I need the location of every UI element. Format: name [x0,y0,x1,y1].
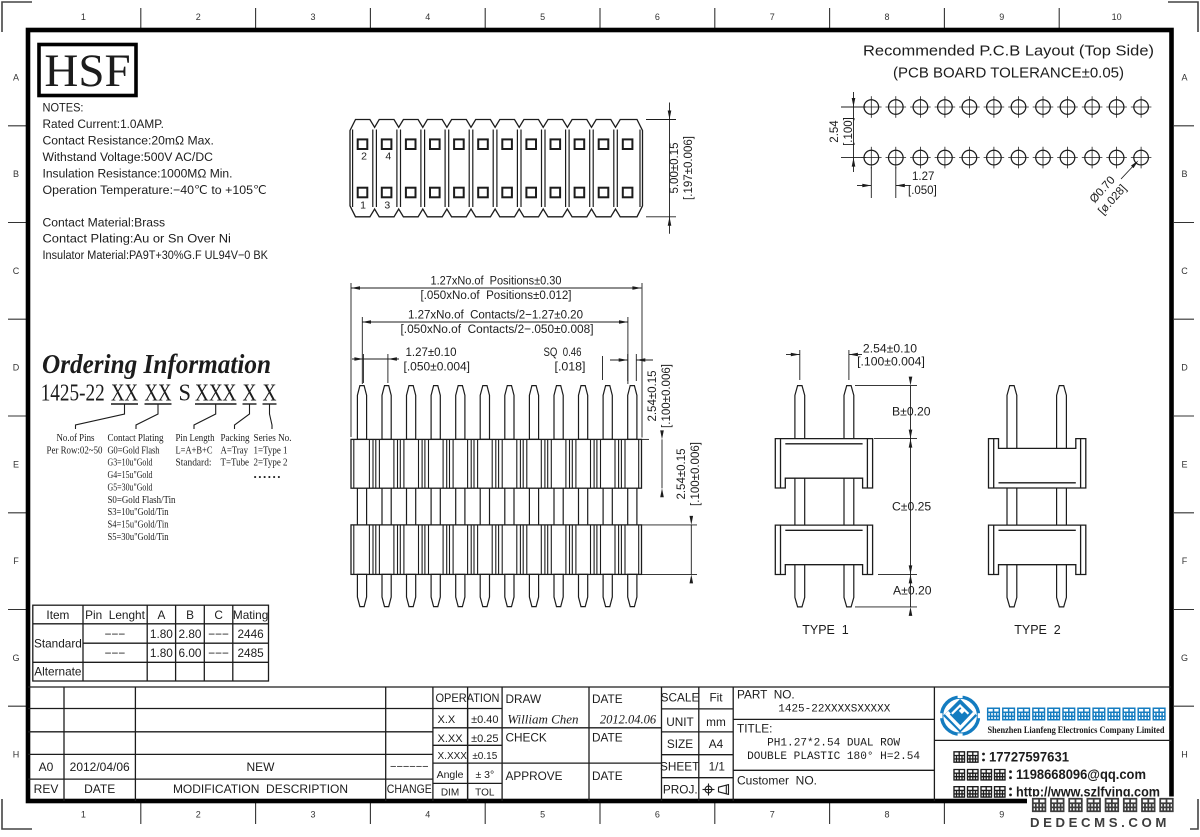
svg-text:TYPE 1: TYPE 1 [802,623,849,637]
svg-text:10: 10 [1112,12,1122,22]
svg-text:Rated Current:1.0AMP.: Rated Current:1.0AMP. [43,117,164,131]
svg-text:DATE: DATE [84,782,115,796]
svg-text:DATE: DATE [592,731,623,745]
svg-text:X.XXX: X.XXX [438,751,468,762]
svg-text:2.54±0.15: 2.54±0.15 [647,370,659,421]
svg-text:1: 1 [81,810,86,820]
svg-text:Item: Item [46,608,69,622]
svg-text:A4: A4 [709,737,724,751]
svg-text:CHANGE: CHANGE [387,782,432,796]
svg-text:No.of Pins: No.of Pins [57,433,95,444]
svg-text:Packing: Packing [221,433,251,444]
svg-text:[.100±0.004]: [.100±0.004] [857,355,925,369]
svg-text:X: X [243,380,257,407]
svg-text:[.100±0.006]: [.100±0.006] [661,364,673,428]
svg-text:[.050xNo.of Positions±0.012]: [.050xNo.of Positions±0.012] [421,288,572,302]
svg-text:[.050xNo.of Contacts/2−.050±0: [.050xNo.of Contacts/2−.050±0.008] [401,322,594,336]
svg-text:[.050]: [.050] [908,185,937,197]
svg-text:D: D [1181,363,1188,373]
svg-text:NOTES:: NOTES: [43,101,84,115]
svg-text:William Chen: William Chen [507,712,578,727]
svg-text:2485: 2485 [237,646,264,660]
svg-text:A: A [13,72,19,82]
svg-text:6: 6 [655,810,660,820]
svg-text:REV: REV [34,782,59,796]
svg-text:TOL: TOL [475,788,495,799]
svg-text:mm: mm [706,715,726,729]
svg-text:B: B [186,608,194,622]
svg-text:S0=Gold Flash/Tin: S0=Gold Flash/Tin [108,495,177,506]
svg-text:A=Tray: A=Tray [221,445,249,456]
svg-text:Operation Temperature:−40℃ to: Operation Temperature:−40℃ to +105℃ [43,183,267,197]
svg-text:8: 8 [884,810,889,820]
svg-text:S3=10u"Gold/Tin: S3=10u"Gold/Tin [108,507,170,518]
svg-text:X.X: X.X [438,714,456,726]
svg-text:1: 1 [81,12,86,22]
svg-text:Withstand Voltage:500V AC/DC: Withstand Voltage:500V AC/DC [43,150,214,164]
svg-text:Insulation Resistance:1000MΩ M: Insulation Resistance:1000MΩ Min. [43,167,233,181]
svg-text:±0.40: ±0.40 [471,714,498,726]
svg-text:2012/04/06: 2012/04/06 [70,760,130,774]
svg-text:17727597631: 17727597631 [989,750,1069,765]
svg-text:TYPE 2: TYPE 2 [1014,623,1061,637]
svg-text:T=Tube: T=Tube [221,458,250,469]
svg-text:Fit: Fit [709,691,723,705]
svg-text:1/1: 1/1 [709,760,725,774]
svg-text:Series No.: Series No. [254,433,292,444]
svg-text:A±0.20: A±0.20 [893,584,932,598]
svg-text:[.018]: [.018] [555,360,586,374]
svg-text:G4=15u"Gold: G4=15u"Gold [108,470,154,481]
svg-text:Per Row:02~50: Per Row:02~50 [47,446,103,457]
svg-text:6: 6 [655,12,660,22]
svg-text:APPROVE: APPROVE [506,769,563,783]
svg-text:Ordering Information: Ordering Information [42,349,271,379]
svg-text:H: H [13,750,20,760]
svg-text:D: D [13,363,20,373]
svg-text:......: ...... [254,466,283,481]
svg-text:MODIFICATION DESCRIPTION: MODIFICATION DESCRIPTION [173,782,348,796]
svg-text:SHEET: SHEET [660,760,699,774]
svg-text:1425-22XXXXSXXXXX: 1425-22XXXXSXXXXX [778,704,890,716]
svg-text:G5=30u"Gold: G5=30u"Gold [108,482,154,493]
svg-text:1=Type 1: 1=Type 1 [254,445,288,456]
svg-text:[.197±0.006]: [.197±0.006] [683,136,695,200]
svg-text:−−−−−−: −−−−−− [390,761,429,773]
svg-text:A0: A0 [39,760,54,774]
svg-text:TITLE:: TITLE: [737,722,772,736]
svg-text:1198668096@qq.com: 1198668096@qq.com [1016,767,1146,782]
svg-text:7: 7 [770,12,775,22]
svg-text:±0.25: ±0.25 [471,733,498,745]
svg-text:Standard:: Standard: [176,458,212,469]
svg-text:SQ 0.46: SQ 0.46 [544,345,582,359]
svg-text:Alternate: Alternate [34,665,82,679]
svg-text:1.80: 1.80 [150,646,173,660]
svg-text:XX: XX [145,380,172,407]
svg-text:1.27xNo.of Positions±0.30: 1.27xNo.of Positions±0.30 [431,274,562,288]
svg-text:±0.15: ±0.15 [472,751,497,762]
svg-text:Insulator Material:PA9T+30%G.F: Insulator Material:PA9T+30%G.F UL94V−0 B… [43,248,268,262]
svg-text:9: 9 [999,810,1004,820]
svg-text:X.XX: X.XX [438,733,464,745]
svg-text:S5=30u"Gold/Tin: S5=30u"Gold/Tin [108,532,170,543]
svg-text:−−−: −−− [105,627,126,641]
svg-text:CHECK: CHECK [506,731,547,745]
svg-text:[.100±0.006]: [.100±0.006] [690,442,702,506]
svg-text:1.27xNo.of Contacts/2−1.27±0.: 1.27xNo.of Contacts/2−1.27±0.20 [408,308,583,322]
svg-text:5.00±0.15: 5.00±0.15 [669,142,681,193]
svg-text:PART NO.: PART NO. [737,688,795,702]
svg-text:2012.04.06: 2012.04.06 [600,713,657,727]
svg-text:B: B [1181,169,1187,179]
svg-text:3: 3 [384,200,390,212]
svg-text:Mating: Mating [233,608,268,622]
svg-text:SCALE: SCALE [661,691,700,705]
svg-text:7: 7 [770,810,775,820]
svg-text:DATE: DATE [592,692,623,706]
svg-text:E: E [13,459,19,469]
svg-text:C±0.25: C±0.25 [892,500,931,514]
svg-text:9: 9 [999,12,1004,22]
svg-text:[.050±0.004]: [.050±0.004] [404,360,471,374]
svg-text:Shenzhen Lianfeng Electronics: Shenzhen Lianfeng Electronics Company Li… [988,726,1166,736]
svg-text:G3=10u"Gold: G3=10u"Gold [108,458,154,469]
svg-text:E: E [1181,459,1187,469]
svg-text:S4=15u"Gold/Tin: S4=15u"Gold/Tin [108,520,170,531]
svg-text:G0=Gold Flash: G0=Gold Flash [108,445,161,456]
svg-text:DRAW: DRAW [506,692,542,706]
svg-text:G: G [1181,653,1188,663]
svg-text:1: 1 [360,200,366,212]
svg-text:B±0.20: B±0.20 [892,405,931,419]
svg-text:PH1.27*2.54 DUAL ROW: PH1.27*2.54 DUAL ROW [767,737,900,749]
svg-text:Pin Length: Pin Length [176,433,216,444]
svg-text:L=A+B+C: L=A+B+C [176,445,213,456]
svg-text:2: 2 [196,12,201,22]
svg-text:C: C [13,266,20,276]
svg-text:2: 2 [361,151,367,163]
svg-text:DIM: DIM [441,788,459,799]
svg-text:SIZE: SIZE [667,737,693,751]
svg-text:2.54±0.10: 2.54±0.10 [863,342,917,356]
svg-text:4: 4 [425,12,430,22]
svg-text:Recommended P.C.B Layout (Top: Recommended P.C.B Layout (Top Side) [863,44,1154,60]
svg-text:Contact Resistance:20mΩ Max.: Contact Resistance:20mΩ Max. [43,134,214,148]
svg-text:± 3°: ± 3° [475,769,494,781]
svg-text:A: A [157,608,165,622]
svg-text:F: F [1182,556,1188,566]
svg-text:DOUBLE PLASTIC 180° H=2.54: DOUBLE PLASTIC 180° H=2.54 [747,751,920,763]
svg-text:H: H [1181,750,1188,760]
svg-text:(PCB BOARD TOLERANCE±0.05): (PCB BOARD TOLERANCE±0.05) [893,66,1124,82]
svg-text:2.54±0.15: 2.54±0.15 [676,448,688,499]
svg-text:2.54: 2.54 [829,120,841,143]
svg-text:Pin Lenght: Pin Lenght [85,608,145,622]
svg-text:Standard: Standard [34,637,82,651]
svg-text:5: 5 [540,810,545,820]
svg-text:OPERATION: OPERATION [436,691,500,705]
svg-text:4: 4 [385,151,391,163]
svg-text:C: C [214,608,223,622]
svg-text:2: 2 [196,810,201,820]
svg-text:−−−: −−− [208,646,229,660]
svg-text:HSF: HSF [44,45,130,97]
svg-text:3: 3 [310,810,315,820]
svg-text:8: 8 [884,12,889,22]
svg-text:5: 5 [540,12,545,22]
svg-text:XX: XX [111,380,138,407]
svg-text:Customer NO.: Customer NO. [737,773,817,787]
svg-text:1.27: 1.27 [912,171,934,183]
svg-text:Angle: Angle [437,769,464,781]
svg-text:PROJ.: PROJ. [663,783,698,797]
svg-text:Contact Plating:Au or Sn Over: Contact Plating:Au or Sn Over Ni [43,232,231,246]
svg-text:−−−: −−− [208,627,229,641]
svg-text:NEW: NEW [247,760,276,774]
svg-text:4: 4 [425,810,430,820]
svg-text:6.00: 6.00 [179,646,202,660]
svg-text:C: C [1181,266,1188,276]
svg-text:F: F [13,556,19,566]
svg-text:Contact Material:Brass: Contact Material:Brass [43,216,166,230]
svg-text:−−−: −−− [105,646,126,660]
svg-text:2.80: 2.80 [179,627,202,641]
svg-text:1.80: 1.80 [150,627,173,641]
svg-text:DEDECMS.COM: DEDECMS.COM [1030,815,1170,830]
svg-text:X: X [263,380,277,407]
svg-text:S: S [179,380,192,407]
svg-text:UNIT: UNIT [666,715,694,729]
svg-text:Contact Plating: Contact Plating [108,433,165,444]
svg-text:B: B [13,169,19,179]
svg-text:G: G [12,653,19,663]
svg-text:DATE: DATE [592,769,623,783]
svg-text:1.27±0.10: 1.27±0.10 [406,345,457,359]
svg-text:XXX: XXX [195,380,237,407]
svg-text:3: 3 [310,12,315,22]
svg-text:[.100]: [.100] [843,117,855,146]
svg-text:A: A [1181,72,1187,82]
svg-text:1425-22: 1425-22 [41,380,105,407]
svg-text:2446: 2446 [237,627,264,641]
